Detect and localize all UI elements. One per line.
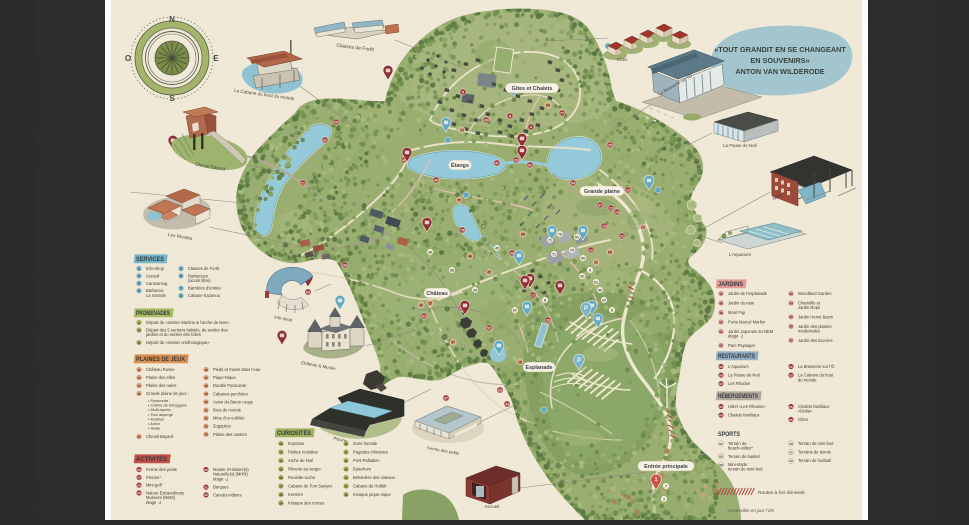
svg-text:37: 37 — [451, 340, 455, 344]
svg-text:Jardin Hervé Bazin: Jardin Hervé Bazin — [798, 314, 834, 319]
svg-text:15: 15 — [137, 392, 141, 396]
svg-text:Double Pyracorde: Double Pyracorde — [213, 383, 247, 388]
svg-text:Canoës indiens: Canoës indiens — [213, 492, 242, 497]
svg-text:Porte Marcel Marlier: Porte Marcel Marlier — [728, 320, 766, 325]
svg-text:Barrières d’entrée: Barrières d’entrée — [188, 286, 222, 291]
svg-text:33: 33 — [279, 450, 283, 454]
svg-text:Mine d’or oubliée: Mine d’or oubliée — [213, 416, 245, 421]
svg-text:(accès libre): (accès libre) — [188, 278, 211, 283]
svg-text:étage -1: étage -1 — [213, 476, 228, 481]
svg-text:«TOUT GRANDIT EN SE CHANGEANT: «TOUT GRANDIT EN SE CHANGEANT — [714, 45, 846, 54]
svg-text:2: 2 — [663, 497, 665, 501]
svg-text:13: 13 — [137, 376, 141, 380]
svg-text:Classes de Forêt: Classes de Forêt — [188, 266, 220, 271]
svg-text:O: O — [125, 54, 131, 63]
svg-text:S: S — [169, 94, 175, 103]
svg-text:33: 33 — [498, 388, 502, 392]
svg-text:Jardin Rops: Jardin Rops — [798, 305, 820, 310]
svg-text:Château Russe: Château Russe — [146, 367, 175, 372]
svg-text:Gîtes: Gîtes — [798, 417, 808, 422]
svg-text:14: 14 — [137, 384, 141, 388]
svg-text:26: 26 — [343, 263, 347, 267]
svg-text:Jardin du nain: Jardin du nain — [728, 301, 755, 306]
svg-text:71: 71 — [552, 252, 556, 256]
svg-text:Arche de Noé: Arche de Noé — [288, 458, 314, 463]
svg-text:La rotonde: La rotonde — [146, 293, 166, 298]
svg-text:Cabane Kazanou: Cabane Kazanou — [188, 293, 221, 298]
svg-text:61: 61 — [789, 365, 793, 369]
svg-text:Zugspitze: Zugspitze — [213, 424, 232, 429]
svg-text:Jardin des licornes: Jardin des licornes — [798, 338, 833, 343]
svg-text:26: 26 — [137, 468, 141, 472]
svg-text:La Pause de Noé: La Pause de Noé — [723, 143, 757, 148]
svg-text:Gîtes et Chalets: Gîtes et Chalets — [512, 86, 553, 92]
svg-text:67: 67 — [513, 308, 517, 312]
svg-text:23: 23 — [204, 425, 208, 429]
svg-text:44: 44 — [434, 178, 438, 182]
svg-text:9: 9 — [138, 321, 140, 325]
svg-text:51: 51 — [594, 280, 598, 284]
svg-text:75: 75 — [457, 198, 461, 202]
svg-text:37: 37 — [444, 396, 448, 400]
svg-text:Esplanade: Esplanade — [526, 365, 553, 371]
svg-text:beach-volley*: beach-volley* — [728, 446, 753, 451]
svg-text:Info-Shop: Info-Shop — [146, 266, 165, 271]
svg-text:Accueil: Accueil — [485, 504, 500, 509]
svg-text:51: 51 — [528, 163, 532, 167]
svg-text:5: 5 — [180, 267, 182, 271]
svg-text:Rêverie au verger: Rêverie au verger — [288, 467, 322, 472]
svg-text:Départ du «sentier Martine & l: Départ du «sentier Martine & l’arche de … — [146, 320, 230, 325]
svg-text:32: 32 — [279, 442, 283, 446]
svg-text:8: 8 — [544, 298, 546, 302]
svg-text:Plaine des elfes: Plaine des elfes — [146, 375, 175, 380]
svg-text:9: 9 — [589, 268, 591, 272]
svg-text:8: 8 — [180, 294, 182, 298]
svg-text:Piscine*: Piscine* — [146, 475, 161, 480]
svg-text:Zone humide: Zone humide — [353, 441, 378, 446]
svg-text:22: 22 — [620, 234, 624, 238]
svg-text:Boterhorn: Boterhorn — [353, 467, 372, 472]
svg-text:La Brasserie sur l’Ô: La Brasserie sur l’Ô — [798, 364, 835, 369]
svg-text:Cabanes perchées: Cabanes perchées — [213, 391, 248, 396]
svg-text:Terrains de tennis: Terrains de tennis — [798, 450, 831, 455]
svg-text:20: 20 — [514, 158, 518, 162]
svg-text:72: 72 — [789, 459, 793, 463]
svg-text:42: 42 — [344, 459, 348, 463]
svg-text:27: 27 — [137, 476, 141, 480]
svg-text:jardins et du sentier des foli: jardins et du sentier des folies — [145, 332, 201, 337]
svg-text:20: 20 — [204, 400, 208, 404]
svg-text:21: 21 — [204, 408, 208, 412]
svg-text:1: 1 — [138, 267, 140, 271]
svg-text:ANTON VAN WILDERODE: ANTON VAN WILDERODE — [735, 67, 824, 76]
svg-text:52: 52 — [719, 344, 723, 348]
svg-text:13: 13 — [609, 206, 613, 210]
svg-text:12: 12 — [594, 260, 598, 264]
svg-text:Avion du Baron rouge: Avion du Baron rouge — [213, 399, 254, 404]
svg-text:69: 69 — [719, 463, 723, 467]
svg-text:RESTAURANTS: RESTAURANTS — [718, 353, 755, 360]
svg-text:HÉBERGEMENTS: HÉBERGEMENTS — [718, 391, 758, 400]
svg-text:4: 4 — [530, 125, 532, 129]
svg-text:38: 38 — [450, 268, 454, 272]
svg-text:40: 40 — [344, 442, 348, 446]
svg-text:11: 11 — [137, 341, 141, 345]
svg-text:2: 2 — [138, 274, 140, 278]
svg-text:Pont Palladien: Pont Palladien — [353, 458, 380, 463]
svg-text:Expobos: Expobos — [288, 441, 304, 446]
svg-text:Les Rhodos: Les Rhodos — [728, 381, 750, 386]
svg-text:N: N — [169, 15, 175, 24]
svg-text:18: 18 — [518, 360, 522, 364]
svg-text:La Pause de Noé: La Pause de Noé — [728, 373, 761, 378]
svg-text:Hôtel «Les Rhodos»: Hôtel «Les Rhodos» — [728, 404, 766, 409]
svg-text:E: E — [213, 54, 219, 63]
svg-text:69: 69 — [521, 232, 525, 236]
svg-text:60: 60 — [719, 382, 723, 386]
svg-text:56: 56 — [789, 325, 793, 329]
svg-text:Belvédère des oiseaux: Belvédère des oiseaux — [353, 475, 396, 480]
svg-text:7: 7 — [665, 484, 667, 488]
svg-text:31: 31 — [323, 138, 327, 142]
svg-text:66: 66 — [789, 418, 793, 422]
svg-text:58: 58 — [719, 365, 723, 369]
svg-text:PLAINES DE JEUX: PLAINES DE JEUX — [136, 356, 185, 363]
svg-text:30: 30 — [204, 468, 208, 472]
svg-text:8: 8 — [509, 114, 511, 118]
svg-text:étage -1: étage -1 — [728, 334, 743, 339]
svg-text:étage -1: étage -1 — [146, 500, 161, 505]
svg-text:Gîtes: Gîtes — [617, 57, 629, 62]
svg-text:terrain de mini-foot: terrain de mini-foot — [728, 467, 763, 472]
svg-text:17: 17 — [204, 376, 208, 380]
svg-text:Mini-golf: Mini-golf — [146, 483, 162, 488]
svg-text:50: 50 — [598, 288, 602, 292]
svg-text:35: 35 — [279, 467, 283, 471]
svg-text:47: 47 — [602, 298, 606, 302]
svg-text:64: 64 — [719, 413, 723, 417]
svg-text:SERVICES: SERVICES — [136, 256, 164, 263]
svg-text:*Accessible en jour l’UN: *Accessible en jour l’UN — [727, 508, 775, 513]
svg-text:52: 52 — [487, 326, 491, 330]
svg-text:19: 19 — [204, 392, 208, 396]
svg-text:20: 20 — [334, 120, 338, 124]
svg-text:46: 46 — [344, 493, 348, 497]
svg-text:31: 31 — [204, 485, 208, 489]
svg-text:Étangs: Étangs — [451, 161, 469, 169]
svg-text:Terrain de football: Terrain de football — [798, 458, 831, 463]
svg-text:28: 28 — [137, 483, 141, 487]
svg-text:3: 3 — [138, 282, 140, 286]
svg-text:50: 50 — [719, 320, 723, 324]
svg-text:77: 77 — [560, 111, 564, 115]
svg-text:71: 71 — [789, 450, 793, 454]
svg-text:39: 39 — [473, 288, 477, 292]
svg-text:39: 39 — [279, 501, 283, 505]
svg-text:23: 23 — [626, 188, 630, 192]
svg-text:54: 54 — [789, 301, 793, 305]
svg-text:25: 25 — [137, 435, 141, 439]
svg-text:Petites roulottes: Petites roulottes — [288, 450, 318, 455]
svg-text:70: 70 — [570, 248, 574, 252]
svg-text:Accueil: Accueil — [146, 273, 159, 278]
svg-text:30: 30 — [484, 118, 488, 122]
svg-text:14: 14 — [615, 210, 619, 214]
svg-text:Cabane de Tom Sawyer: Cabane de Tom Sawyer — [288, 484, 333, 489]
svg-text:45: 45 — [344, 484, 348, 488]
svg-text:59: 59 — [719, 373, 723, 377]
svg-text:Pieds et mains dans l’eau: Pieds et mains dans l’eau — [213, 367, 261, 372]
svg-text:8: 8 — [611, 308, 613, 312]
svg-text:49: 49 — [719, 311, 723, 315]
svg-text:CURIOSITÉS: CURIOSITÉS — [277, 428, 311, 437]
svg-text:16: 16 — [204, 368, 208, 372]
svg-text:Terrain de basket: Terrain de basket — [728, 454, 761, 459]
svg-text:Plaine des nains: Plaine des nains — [146, 383, 176, 388]
svg-text:34: 34 — [279, 459, 283, 463]
svg-text:P: P — [584, 306, 588, 312]
svg-text:Cabane du Hobbit: Cabane du Hobbit — [353, 484, 387, 489]
svg-text:L’Aquarium: L’Aquarium — [728, 364, 749, 369]
svg-text:Entrée principale: Entrée principale — [644, 464, 688, 470]
svg-text:médicinales: médicinales — [798, 329, 820, 334]
svg-text:50: 50 — [581, 256, 585, 260]
svg-text:Bout du monde: Bout du monde — [213, 408, 242, 413]
svg-text:du monde: du monde — [798, 377, 817, 382]
svg-text:47: 47 — [495, 161, 499, 165]
svg-text:63: 63 — [719, 405, 723, 409]
svg-text:SPORTS: SPORTS — [718, 431, 740, 438]
svg-text:68: 68 — [719, 455, 723, 459]
svg-text:38: 38 — [279, 493, 283, 497]
svg-text:48: 48 — [719, 301, 723, 305]
svg-text:54: 54 — [571, 181, 575, 185]
svg-text:12: 12 — [137, 368, 141, 372]
svg-text:6: 6 — [180, 274, 182, 278]
svg-text:4: 4 — [138, 289, 140, 293]
svg-text:54: 54 — [546, 103, 550, 107]
svg-text:24: 24 — [204, 433, 208, 437]
svg-text:45: 45 — [487, 270, 491, 274]
svg-text:17: 17 — [531, 293, 535, 297]
svg-text:35: 35 — [428, 301, 432, 305]
svg-text:36: 36 — [279, 476, 283, 480]
svg-text:12: 12 — [589, 248, 593, 252]
svg-text:ACTIVITÉS: ACTIVITÉS — [136, 454, 167, 463]
svg-text:53: 53 — [789, 292, 793, 296]
svg-text:46: 46 — [468, 254, 472, 258]
svg-text:21: 21 — [301, 181, 305, 185]
svg-text:JARDINS: JARDINS — [718, 281, 743, 288]
svg-text:Cheval Bayard: Cheval Bayard — [146, 434, 174, 439]
svg-text:Plaine des castors: Plaine des castors — [213, 432, 247, 437]
svg-text:7: 7 — [180, 287, 182, 291]
svg-text:32: 32 — [580, 274, 584, 278]
svg-text:Woodland Garden: Woodland Garden — [798, 291, 832, 296]
svg-text:67: 67 — [719, 442, 723, 446]
svg-text:23: 23 — [641, 225, 645, 229]
svg-text:Terrain de mini-foot: Terrain de mini-foot — [798, 441, 834, 446]
svg-text:34: 34 — [505, 402, 509, 406]
svg-text:Jardin de l’esplanade: Jardin de l’esplanade — [728, 291, 768, 296]
svg-text:51: 51 — [719, 330, 723, 334]
svg-text:Roulotte-ruche: Roulotte-ruche — [288, 475, 316, 480]
svg-text:70: 70 — [558, 232, 562, 236]
svg-text:70: 70 — [789, 442, 793, 446]
svg-text:65: 65 — [789, 405, 793, 409]
svg-text:25: 25 — [608, 143, 612, 147]
svg-text:• Skate: • Skate — [148, 426, 160, 431]
svg-text:Départ du «sentier ornithologi: Départ du «sentier ornithologique» — [146, 340, 210, 345]
svg-text:37: 37 — [598, 203, 602, 207]
svg-text:32: 32 — [204, 493, 208, 497]
svg-text:«Delta»: «Delta» — [798, 409, 813, 414]
svg-text:Grande plaine: Grande plaine — [584, 189, 620, 195]
svg-text:Kerterre: Kerterre — [288, 492, 304, 497]
svg-text:29: 29 — [137, 491, 141, 495]
svg-text:60: 60 — [306, 290, 310, 294]
svg-text:68: 68 — [608, 250, 612, 254]
svg-text:75: 75 — [460, 228, 464, 232]
svg-text:72: 72 — [460, 128, 464, 132]
svg-text:Château: Château — [426, 291, 447, 297]
svg-text:Ferme des petits: Ferme des petits — [146, 467, 177, 472]
svg-text:EN SOUVENIRS»: EN SOUVENIRS» — [750, 56, 809, 65]
svg-text:22: 22 — [204, 416, 208, 420]
svg-text:44: 44 — [344, 476, 348, 480]
svg-text:Kiosque des ronces: Kiosque des ronces — [288, 501, 324, 506]
svg-text:Barques: Barques — [213, 485, 228, 490]
svg-text:92: 92 — [422, 314, 426, 318]
svg-text:43: 43 — [344, 467, 348, 471]
svg-text:Kiosque pique-nique: Kiosque pique-nique — [353, 492, 391, 497]
svg-text:P: P — [577, 358, 581, 364]
svg-text:28: 28 — [546, 318, 550, 322]
svg-text:Mont Fuji: Mont Fuji — [728, 310, 745, 315]
svg-text:45: 45 — [495, 246, 499, 250]
svg-text:Chalets familiaux: Chalets familiaux — [728, 413, 760, 418]
svg-text:55: 55 — [789, 315, 793, 319]
svg-text:PROMENADES: PROMENADES — [136, 310, 170, 317]
svg-text:Pagodes chinoises: Pagodes chinoises — [353, 450, 388, 455]
svg-text:41: 41 — [344, 450, 348, 454]
svg-text:57: 57 — [789, 339, 793, 343]
svg-text:Parc Paysager: Parc Paysager — [728, 343, 756, 348]
svg-text:Caravaning: Caravaning — [146, 281, 168, 286]
svg-text:51: 51 — [575, 235, 579, 239]
svg-text:18: 18 — [204, 384, 208, 388]
svg-text:37: 37 — [279, 484, 283, 488]
svg-text:L’Aquarium: L’Aquarium — [729, 252, 751, 257]
svg-text:47: 47 — [719, 292, 723, 296]
svg-text:62: 62 — [789, 373, 793, 377]
svg-text:26: 26 — [510, 251, 514, 255]
svg-text:Routes à fort dénivelé: Routes à fort dénivelé — [758, 490, 805, 496]
svg-text:36: 36 — [419, 303, 423, 307]
svg-text:10: 10 — [137, 328, 141, 332]
svg-text:15: 15 — [602, 224, 606, 228]
svg-text:Grande plaine de jeux :: Grande plaine de jeux : — [146, 391, 189, 396]
svg-text:Pique-Nique: Pique-Nique — [213, 375, 236, 380]
svg-text:5: 5 — [462, 90, 464, 94]
svg-text:1: 1 — [654, 477, 657, 483]
svg-text:39: 39 — [428, 250, 432, 254]
